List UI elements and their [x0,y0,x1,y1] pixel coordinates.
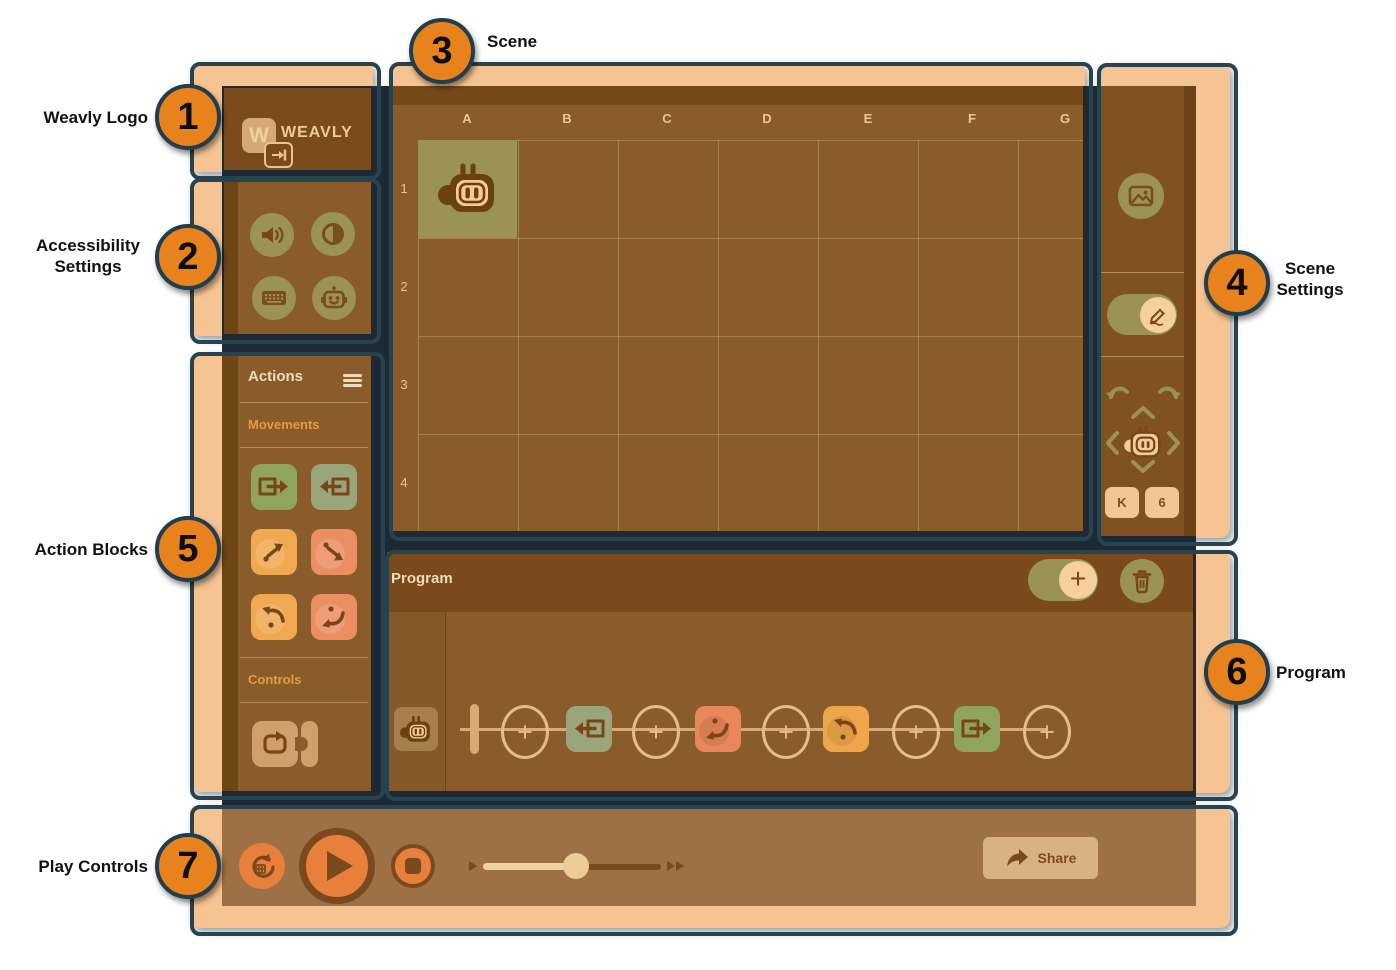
keyboard-icon [260,286,288,310]
contrast-icon [320,221,346,247]
play-icon [325,849,355,883]
robot-step-icon [399,715,433,744]
add-step-slot-2[interactable]: + [632,705,680,759]
speed-slider[interactable] [483,857,661,875]
scene-settings-panel: K 6 [1099,86,1196,536]
callout-5-label: Action Blocks [20,539,148,560]
turn-left-90-icon [831,716,861,742]
callout-6: 6 [1204,639,1270,705]
column-label-b: B [552,111,582,126]
annotated-screenshot: W WEAVLY [0,0,1396,970]
stop-button[interactable] [391,844,435,888]
action-block-backward[interactable] [311,464,357,510]
program-step-turn-left-90[interactable] [823,706,869,752]
volume-icon [259,223,285,247]
callout-7: 7 [155,833,221,899]
wordmark: WEAVLY [281,124,353,142]
forward-icon [960,716,994,742]
scene-header-bar [392,86,1083,105]
turn-left-45-icon [260,539,288,565]
character-step-button[interactable] [394,707,438,751]
callout-4: 4 [1204,250,1270,316]
speed-slider-thumb[interactable] [563,853,589,879]
play-button[interactable] [299,828,375,904]
column-label-a: A [452,111,482,126]
action-block-turn-left-45[interactable] [251,529,297,575]
callout-6-label: Program [1276,662,1386,683]
menu-icon[interactable] [343,374,362,387]
scene-background-button[interactable] [1118,173,1164,219]
delete-all-button[interactable] [1120,559,1164,603]
turn-right-90-icon [703,716,733,742]
column-label-g: G [1050,111,1080,126]
callout-5: 5 [155,516,221,582]
row-label-2: 2 [396,279,412,294]
app-header: W WEAVLY [224,88,371,170]
column-label-f: F [957,111,987,126]
play-controls-bar: Share [222,807,1196,906]
column-label-c: C [652,111,682,126]
robot-character-icon [436,162,500,216]
share-label: Share [1038,850,1077,866]
program-title: Program [391,570,453,587]
reset-button[interactable] [239,843,285,889]
row-label-4: 4 [396,475,412,490]
forward-icon [257,474,291,500]
callout-2-label: Accessibility Settings [28,235,148,278]
add-step-slot-3[interactable]: + [762,705,810,759]
logo-arrow-badge [264,142,293,168]
callout-1-label: Weavly Logo [20,107,148,128]
stop-icon [405,858,421,874]
action-block-turn-left-90[interactable] [251,594,297,640]
controls-section-label: Controls [248,672,301,687]
backward-icon [317,474,351,500]
action-block-turn-right-90[interactable] [311,594,357,640]
callout-2: 2 [155,224,221,290]
fast-speed-icon [666,860,686,872]
robot-mode-button[interactable] [312,276,356,320]
turn-left-90-icon [259,604,289,630]
move-down-icon[interactable] [1130,460,1156,474]
add-step-slot-4[interactable]: + [892,705,940,759]
action-block-turn-right-45[interactable] [311,529,357,575]
program-step-turn-right-90[interactable] [695,706,741,752]
pencil-icon [1147,304,1169,326]
program-step-backward[interactable] [566,706,612,752]
character-key-button[interactable]: K [1105,487,1139,518]
program-panel: Program + [387,552,1193,791]
reset-icon [248,852,276,880]
backward-icon [572,716,606,742]
move-left-icon[interactable] [1105,430,1119,456]
action-block-forward[interactable] [251,464,297,510]
action-block-loop[interactable] [252,721,298,767]
character-count-button[interactable]: 6 [1145,487,1179,518]
pen-toggle[interactable] [1107,294,1177,335]
share-icon [1005,848,1029,868]
callout-3-label: Scene [487,31,587,52]
scene-grid[interactable] [418,140,1083,531]
add-step-slot-5[interactable]: + [1023,705,1071,759]
redo-icon[interactable] [1156,382,1182,402]
move-right-icon[interactable] [1167,430,1181,456]
column-label-e: E [853,111,883,126]
undo-icon[interactable] [1105,382,1131,402]
share-button[interactable]: Share [983,837,1098,879]
character-column [387,612,446,791]
loop-icon [260,730,290,758]
picture-icon [1127,184,1155,208]
add-step-knob: + [1059,561,1097,599]
movements-section-label: Movements [248,417,320,432]
callout-1: 1 [155,84,221,150]
turn-right-45-icon [320,539,348,565]
keyboard-button[interactable] [252,276,296,320]
callout-7-label: Play Controls [20,856,148,877]
column-label-d: D [752,111,782,126]
row-label-3: 3 [396,377,412,392]
add-step-slot-1[interactable]: + [501,705,549,759]
program-start-marker [470,704,479,754]
volume-button[interactable] [250,213,294,257]
row-label-1: 1 [396,181,412,196]
contrast-button[interactable] [311,212,355,256]
character-cell-a1[interactable] [418,140,517,238]
move-up-icon[interactable] [1130,405,1156,419]
program-step-forward[interactable] [954,706,1000,752]
trash-icon [1130,568,1154,594]
enter-arrow-icon [271,148,287,162]
robot-face-icon [320,285,348,311]
add-step-toggle[interactable]: + [1028,559,1098,601]
actions-title: Actions [248,368,303,385]
actions-panel: Actions Movements [222,354,371,791]
pen-toggle-knob [1140,297,1176,333]
callout-4-label: Scene Settings [1272,258,1348,301]
accessibility-panel [224,180,371,334]
turn-right-90-icon [319,604,349,630]
robot-position-icon [1123,425,1163,459]
callout-3: 3 [409,18,475,84]
slow-speed-icon [468,860,478,872]
plus-icon: + [1070,565,1086,593]
